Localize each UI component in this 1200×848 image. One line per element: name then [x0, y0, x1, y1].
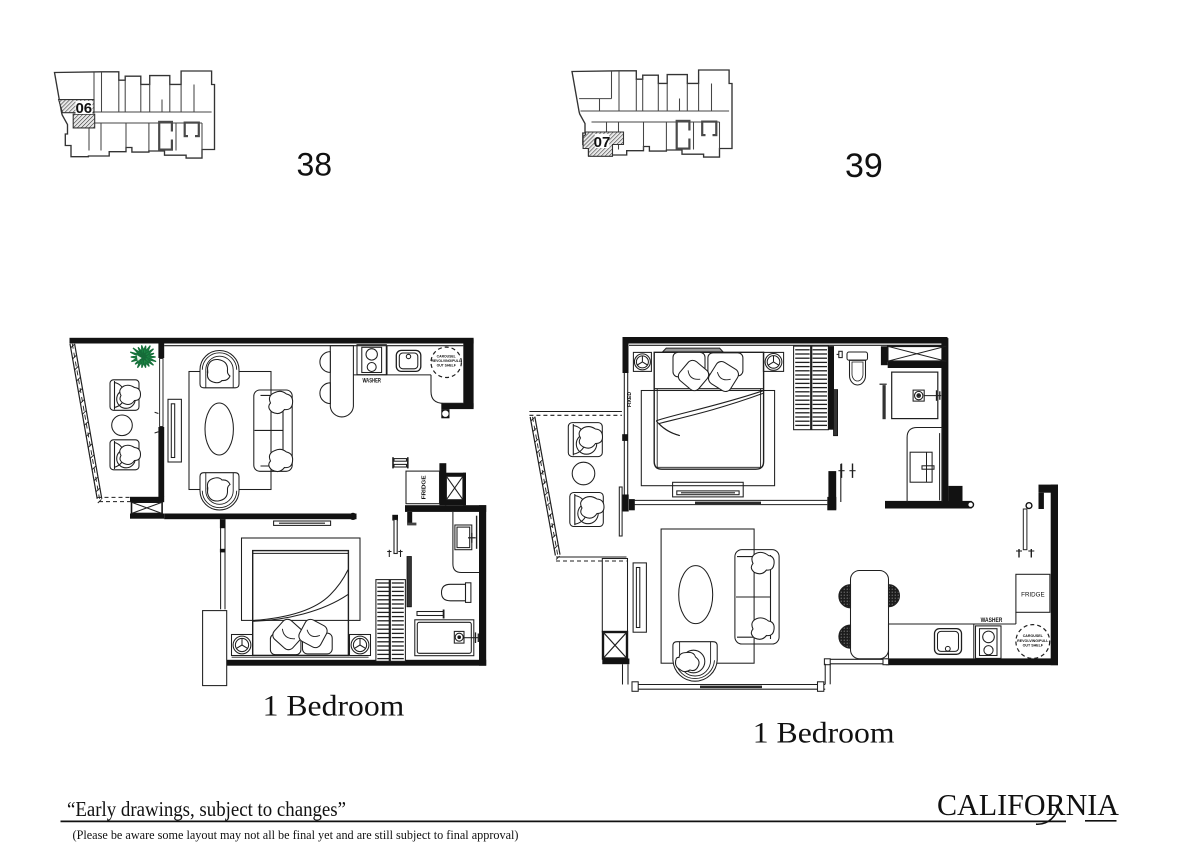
svg-text:FRIDGE: FRIDGE [422, 475, 428, 499]
svg-text:(Please be aware some layout m: (Please be aware some layout may not all… [73, 827, 519, 842]
svg-text:OUT SHELF: OUT SHELF [437, 364, 456, 368]
svg-text:OUT SHELF: OUT SHELF [1023, 644, 1044, 648]
svg-text:REVOLVING/PULL: REVOLVING/PULL [1017, 639, 1049, 643]
svg-text:CAROUSEL: CAROUSEL [437, 355, 456, 359]
svg-text:CAROUSEL: CAROUSEL [1023, 634, 1044, 638]
svg-text:CALIFORNIA: CALIFORNIA [937, 788, 1119, 822]
svg-text:WASHER: WASHER [981, 617, 1003, 624]
svg-text:1 Bedroom: 1 Bedroom [753, 717, 895, 750]
svg-text:07: 07 [594, 134, 611, 151]
svg-text:FRIDGE: FRIDGE [1021, 592, 1045, 599]
svg-text:38: 38 [297, 147, 333, 183]
svg-text:FIXED: FIXED [627, 392, 633, 408]
svg-text:1 Bedroom: 1 Bedroom [263, 690, 405, 723]
svg-text:06: 06 [75, 100, 92, 117]
svg-text:39: 39 [845, 147, 883, 185]
svg-text:WASHER: WASHER [362, 377, 381, 384]
svg-text:REVOLVING/PULL: REVOLVING/PULL [431, 359, 461, 363]
svg-text:“Early drawings, subject to ch: “Early drawings, subject to changes” [67, 797, 346, 821]
